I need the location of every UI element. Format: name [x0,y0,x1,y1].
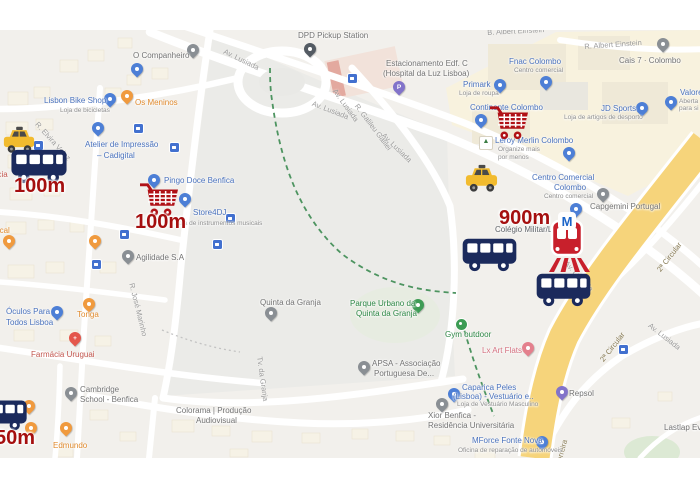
poi-parque-urbano-line1[interactable]: Parque Urbano da [350,299,415,309]
poi-repsol[interactable]: Repsol [569,389,594,399]
poi-primark-sub: Loja de roupa [459,90,499,98]
distance-label-metro-900m: 900m [499,207,550,230]
poi-fnac-sub: Centro comercial [514,67,563,75]
screenshot-root: M Av. Lusiada Av. Lusiada Av. Lusiada Av… [0,0,700,500]
poi-leroy-sub1: Organize mais [498,146,540,154]
poi-centro-comercial-line1[interactable]: Centro Comercial [532,173,594,183]
poi-atelier-line2[interactable]: – Cadigital [97,151,135,161]
poi-jd-sports-sub: Loja de artigos de desporto [564,114,643,122]
bus-stop-icon[interactable] [212,239,223,250]
parking-pin-icon[interactable]: P [391,79,408,96]
poi-fnac[interactable]: Fnac Colombo [509,57,561,67]
poi-cais7[interactable]: Cais 7 · Colombo [619,56,681,66]
poi-caparica-sub: Loja de Vestuário Masculino [457,401,538,409]
poi-farmacia-cut[interactable]: ácia [0,170,8,180]
poi-dpd[interactable]: DPD Pickup Station [298,31,368,41]
poi-apsa-line1[interactable]: APSA - Associação [372,359,440,369]
shopping-cart-marker-icon[interactable] [488,104,530,142]
poi-lx-art-flats[interactable]: Lx Art Flats [482,346,522,356]
bus-marker-icon[interactable] [461,236,518,273]
poi-agilidade[interactable]: Agilidade S.A [136,253,184,263]
distance-label-bus-100m: 100m [14,175,65,198]
poi-colorama-line2[interactable]: Audiovisual [196,416,237,426]
taxi-marker-icon[interactable] [464,164,499,194]
metro-marker-icon[interactable] [544,212,590,274]
poi-mforce-sub: Oficina de reparação de automóveis [458,447,562,455]
pharmacy-pin-icon[interactable]: + [67,330,84,347]
poi-valore-sub2: para si [679,105,699,113]
map-canvas[interactable]: M Av. Lusiada Av. Lusiada Av. Lusiada Av… [0,30,700,458]
poi-capgemini[interactable]: Capgemini Portugal [590,202,660,212]
bus-stop-icon[interactable] [169,142,180,153]
poi-estacionamento-line2[interactable]: (Hospital da Luz Lisboa) [383,69,469,79]
poi-store4dj[interactable]: Store4DJ [193,208,226,218]
poi-apsa-line2[interactable]: Portuguesa De... [374,369,434,379]
poi-atelier-line1[interactable]: Atelier de Impressão [85,140,158,150]
poi-store4dj-sub: Loja de instrumentos musicais [175,220,262,228]
distance-label-cart-100m: 100m [135,211,186,234]
poi-os-meninos[interactable]: Os Meninos [135,98,178,108]
poi-lisbon-bike-shop-sub: Loja de bicicletas [60,107,110,115]
poi-valore[interactable]: Valore [680,88,700,98]
poi-farmacia-uruguai[interactable]: Farmácia Uruguai [31,350,95,360]
poi-leroy-sub2: por menos [498,154,529,162]
bus-stop-icon[interactable] [119,229,130,240]
poi-parque-urbano-line2[interactable]: Quinta da Granja [356,309,417,319]
poi-oculos-line2[interactable]: Todos Lisboa [6,318,53,328]
poi-cambridge-line1[interactable]: Cambridge [80,385,119,395]
poi-o-companheiro[interactable]: O Companheiro [133,51,189,61]
poi-colorama-line1[interactable]: Colorama | Produção [176,406,251,416]
bus-stop-icon[interactable] [618,344,629,355]
poi-primark[interactable]: Primark [463,80,491,90]
poi-tropical[interactable]: tropical [0,226,10,236]
poi-oculos-line1[interactable]: Óculos Para [6,307,50,317]
poi-cambridge-line2[interactable]: School - Benfica [80,395,138,405]
poi-lastlap[interactable]: Lastlap Ev [664,423,700,433]
bus-stop-icon[interactable] [133,123,144,134]
poi-quinta-granja[interactable]: Quinta da Granja [260,298,321,308]
distance-label-bus-50m: 50m [0,427,35,450]
poi-mforce[interactable]: MForce Fonte Nova [472,436,543,446]
poi-xior-line2[interactable]: Residência Universitária [428,421,514,431]
bus-stop-icon[interactable] [91,259,102,270]
bus-marker-icon[interactable] [535,271,592,308]
poi-edmundo[interactable]: Edmundo [53,441,87,451]
poi-xior-line1[interactable]: Xior Benfica - [428,411,476,421]
poi-lisbon-bike-shop[interactable]: Lisbon Bike Shop [44,96,106,106]
poi-tonga[interactable]: Tonga [77,310,99,320]
poi-centro-comercial-line2[interactable]: Colombo [554,183,586,193]
poi-jd-sports[interactable]: JD Sports [601,104,636,114]
bus-stop-icon[interactable] [347,73,358,84]
poi-centro-comercial-sub: Centro comercial [544,193,593,201]
poi-estacionamento-line1[interactable]: Estacionamento Edf. C [386,59,468,69]
poi-gym-outdoor[interactable]: Gym outdoor [445,330,491,340]
